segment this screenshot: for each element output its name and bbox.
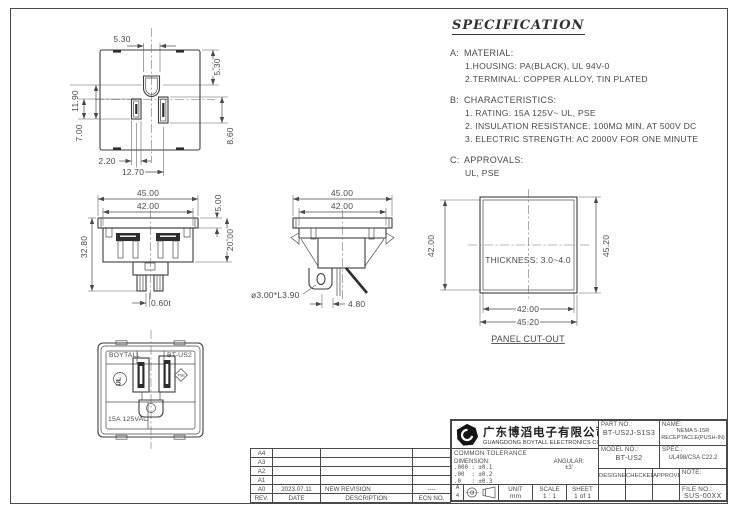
section-label: B: — [450, 94, 464, 107]
name-value-2: RECEPTACLE(PUSH-IN) — [660, 435, 726, 442]
table-row: A2 — [251, 467, 451, 476]
latch-clip — [291, 233, 299, 244]
model-no-value: BT-US2 — [599, 453, 659, 462]
release-hole — [317, 274, 325, 285]
hole-boss — [309, 268, 332, 289]
svg-text:32.80: 32.80 — [79, 236, 89, 258]
name-cell: NAME: NEMA 5-15R RECEPTACLE(PUSH-IN) — [659, 420, 727, 446]
model-no-label: MODEL NO.: — [599, 446, 659, 453]
spec-line: UL, PSE — [465, 167, 730, 180]
date-header: DATE — [273, 494, 321, 503]
svg-text:8.60: 8.60 — [225, 127, 235, 144]
date-cell — [273, 476, 321, 485]
specification-section: SPECIFICATION A:MATERIAL: 1.HOUSING: PA(… — [450, 16, 730, 188]
ecn-header: ECN NO. — [413, 494, 451, 503]
table-row: A3 — [251, 458, 451, 467]
desc-cell: NEW REVISION — [321, 485, 413, 494]
dim-hot-slot: 8.60 — [170, 97, 235, 145]
brand-label: BOYTALL — [109, 352, 141, 359]
note-label: NOTE: — [680, 469, 726, 476]
spec-line: 2. INSULATION RESISTANCE: 100MΩ MIN, AT … — [465, 120, 730, 133]
description-header: DESCRIPTION — [321, 494, 413, 503]
dim-neutral-slot: 7.00 — [74, 99, 130, 142]
checked-cell: CHECKED — [625, 468, 653, 485]
svg-text:5.00: 5.00 — [213, 194, 223, 211]
company-cell: 广东博滔电子有限公司 GUANGDONG BOYTALL ELECTRONICS… — [451, 420, 599, 449]
spec-line: 3. ELECTRIC STRENGTH: AC 2000V FOR ONE M… — [465, 133, 730, 146]
title-block: 广东博滔电子有限公司 GUANGDONG BOYTALL ELECTRONICS… — [450, 419, 728, 502]
svg-text:20.00: 20.00 — [225, 229, 235, 251]
svg-text:45.00: 45.00 — [137, 188, 159, 198]
svg-text:42.00: 42.00 — [426, 235, 436, 257]
designer-value-cell — [598, 484, 626, 501]
tolerance-rows: .000 : ±0.1.00 : ±0.2.0 : ±0.3 — [454, 465, 542, 485]
part-no-value: BT-US2J-S1S3 — [599, 428, 659, 437]
table-row: A4 — [251, 449, 451, 458]
spec-section-material: A:MATERIAL: 1.HOUSING: PA(BLACK), UL 94V… — [450, 47, 730, 86]
spec-label: SPEC.: — [660, 446, 726, 453]
date-cell — [273, 467, 321, 476]
latch-clip — [386, 233, 394, 244]
rev-cell: A4 — [251, 449, 273, 458]
dim-pitch: 4.80 — [310, 294, 365, 309]
revision-table: A4 A3 A2 A1 — [250, 448, 451, 503]
size-number: 4 — [452, 493, 463, 501]
note-cell: NOTE: — [679, 468, 727, 485]
side-view: 45.00 42.00 ø3.00*L3.90 4.80 — [245, 185, 435, 320]
rev-cell: A1 — [251, 476, 273, 485]
scale-value: 1 : 1 — [533, 493, 566, 500]
model-label: BT-US2 — [167, 352, 192, 359]
table-header-row: REV. DATE DESCRIPTION ECN NO. — [251, 494, 451, 503]
desc-cell — [321, 467, 413, 476]
unit-cell: UNIT mm — [498, 484, 533, 501]
unit-label: UNIT — [499, 485, 532, 493]
section-heading: MATERIAL: — [464, 48, 514, 58]
rev-cell: A2 — [251, 467, 273, 476]
dim-slot-width: 2.20 — [98, 121, 151, 166]
desc-cell — [321, 458, 413, 467]
ecn-cell — [413, 449, 451, 458]
rev-header: REV. — [251, 494, 273, 503]
scale-label: SCALE — [533, 485, 566, 493]
date-cell — [273, 458, 321, 467]
name-label: NAME: — [660, 421, 726, 428]
unit-value: mm — [499, 493, 532, 500]
svg-text:2.20: 2.20 — [98, 156, 115, 166]
rev-cell: A3 — [251, 458, 273, 467]
specification-title: SPECIFICATION — [452, 18, 585, 35]
svg-text:12.70: 12.70 — [122, 167, 144, 177]
scale-cell: SCALE 1 : 1 — [532, 484, 567, 501]
svg-text:45.00: 45.00 — [331, 188, 353, 198]
date-cell: 2023.07.11 — [273, 485, 321, 494]
section-label: C: — [450, 154, 464, 167]
svg-text:5.30: 5.30 — [113, 34, 130, 44]
ul-mark-text: UL — [116, 377, 123, 386]
file-no-cell: FILE NO.: SUS-00XX — [679, 484, 727, 501]
tolerance-cell: COMMON TOLERANCE DIMENSION: .000 : ±0.1.… — [451, 448, 599, 485]
body — [318, 238, 365, 268]
svg-text:42.00: 42.00 — [331, 201, 353, 211]
pin-face-view: 5.30 5.30 11.90 7.00 8.60 — [55, 15, 255, 190]
desc-cell — [321, 449, 413, 458]
release-lever — [346, 268, 367, 293]
section-heading: APPROVALS: — [464, 155, 523, 165]
boytall-logo — [455, 423, 479, 447]
sheet-label: SHEET — [567, 485, 598, 493]
section-heading: CHARACTERISTICS: — [464, 95, 556, 105]
spec-line: 1. RATING: 15A 125V~ UL, PSE — [465, 107, 730, 120]
dim-pin-offset: 5.30 — [163, 50, 222, 85]
spec-section-approvals: C:APPROVALS: UL, PSE — [450, 154, 730, 180]
spec-cell: SPEC.: UL498/CSA C22.2 — [659, 445, 727, 469]
third-angle-projection-icon — [464, 485, 498, 500]
panel-cutout-title: PANEL CUT-OUT — [491, 334, 565, 344]
spec-value: UL498/CSA C22.2 — [660, 455, 726, 461]
svg-text:42.00: 42.00 — [517, 304, 539, 314]
svg-text:ø3.00*L3.90: ø3.00*L3.90 — [251, 290, 300, 300]
svg-text:4.80: 4.80 — [348, 299, 365, 309]
housing-outline — [100, 50, 200, 150]
front-face-view: UL PSE BOYTALL BT-US2 15A 125VAC — [88, 326, 228, 451]
rev-cell: A0 — [251, 485, 273, 494]
panel-cutout-view: THICKNESS: 3.0~4.0 42.00 45.20 42.00 45.… — [415, 185, 630, 350]
svg-text:5.30: 5.30 — [212, 58, 222, 75]
file-no-label: FILE NO.: — [680, 485, 726, 493]
approved-value-cell — [652, 484, 680, 501]
company-name-en: GUANGDONG BOYTALL ELECTRONICS CO.,LTD — [483, 440, 599, 446]
svg-text:45.20: 45.20 — [517, 317, 539, 327]
drawing-sheet: 5.30 5.30 11.90 7.00 8.60 — [0, 0, 738, 512]
file-no-value: SUS-00XX — [680, 493, 726, 500]
designer-cell: DESIGNER — [598, 468, 626, 485]
ecn-cell: ---- — [413, 485, 451, 494]
projection-cell — [463, 484, 499, 501]
section-label: A: — [450, 47, 464, 60]
sheet-cell: SHEET 1 of 1 — [566, 484, 599, 501]
spec-line: 2.TERMINAL: COPPER ALLOY, TIN PLATED — [465, 73, 730, 86]
svg-text:45.20: 45.20 — [601, 235, 611, 257]
svg-text:7.00: 7.00 — [74, 124, 84, 141]
rating-label: 15A 125VAC — [108, 416, 148, 423]
angular-value: ±3' — [542, 465, 596, 471]
part-no-label: PART NO.: — [599, 421, 659, 428]
pse-mark-text: PSE — [178, 374, 186, 378]
part-no-cell: PART NO.: BT-US2J-S1S3 — [598, 420, 660, 446]
size-letter: A — [452, 485, 463, 493]
dim-inner-width: 42.00 — [483, 292, 574, 314]
dim-pin-width: 5.30 — [113, 34, 176, 72]
svg-text:0.60t: 0.60t — [151, 298, 171, 308]
dim-total-height: 32.80 — [79, 218, 140, 291]
rear-view: 45.00 42.00 5.00 20.00 32.80 0.60t — [50, 185, 250, 315]
approved-cell: APPROVED — [652, 468, 680, 485]
spec-section-characteristics: B:CHARACTERISTICS: 1. RATING: 15A 125V~ … — [450, 94, 730, 146]
table-row: A1 — [251, 476, 451, 485]
tolerance-title: COMMON TOLERANCE — [452, 449, 598, 458]
ecn-cell — [413, 458, 451, 467]
date-cell — [273, 449, 321, 458]
checked-value-cell — [625, 484, 653, 501]
dim-body-width: 42.00 — [103, 201, 193, 226]
svg-text:11.90: 11.90 — [70, 90, 80, 112]
svg-text:42.00: 42.00 — [137, 201, 159, 211]
ecn-cell — [413, 476, 451, 485]
dim-body-depth: 20.00 — [195, 218, 235, 262]
company-name-cn: 广东博滔电子有限公司 — [483, 424, 599, 440]
push-in-terminal — [137, 275, 146, 291]
model-no-cell: MODEL NO.: BT-US2 — [598, 445, 660, 469]
dim-terminal-thickness: 0.60t — [132, 293, 171, 308]
sheet-value: 1 of 1 — [567, 493, 598, 500]
desc-cell — [321, 476, 413, 485]
flange — [98, 218, 198, 228]
table-row: A0 2023.07.11 NEW REVISION ---- — [251, 485, 451, 494]
ecn-cell — [413, 467, 451, 476]
spec-line: 1.HOUSING: PA(BLACK), UL 94V-0 — [465, 60, 730, 73]
dim-hole-callout: ø3.00*L3.90 — [251, 285, 316, 300]
thickness-note: THICKNESS: 3.0~4.0 — [485, 255, 571, 265]
dim-flange-height: 5.00 — [198, 194, 223, 237]
push-in-terminal — [154, 275, 163, 291]
